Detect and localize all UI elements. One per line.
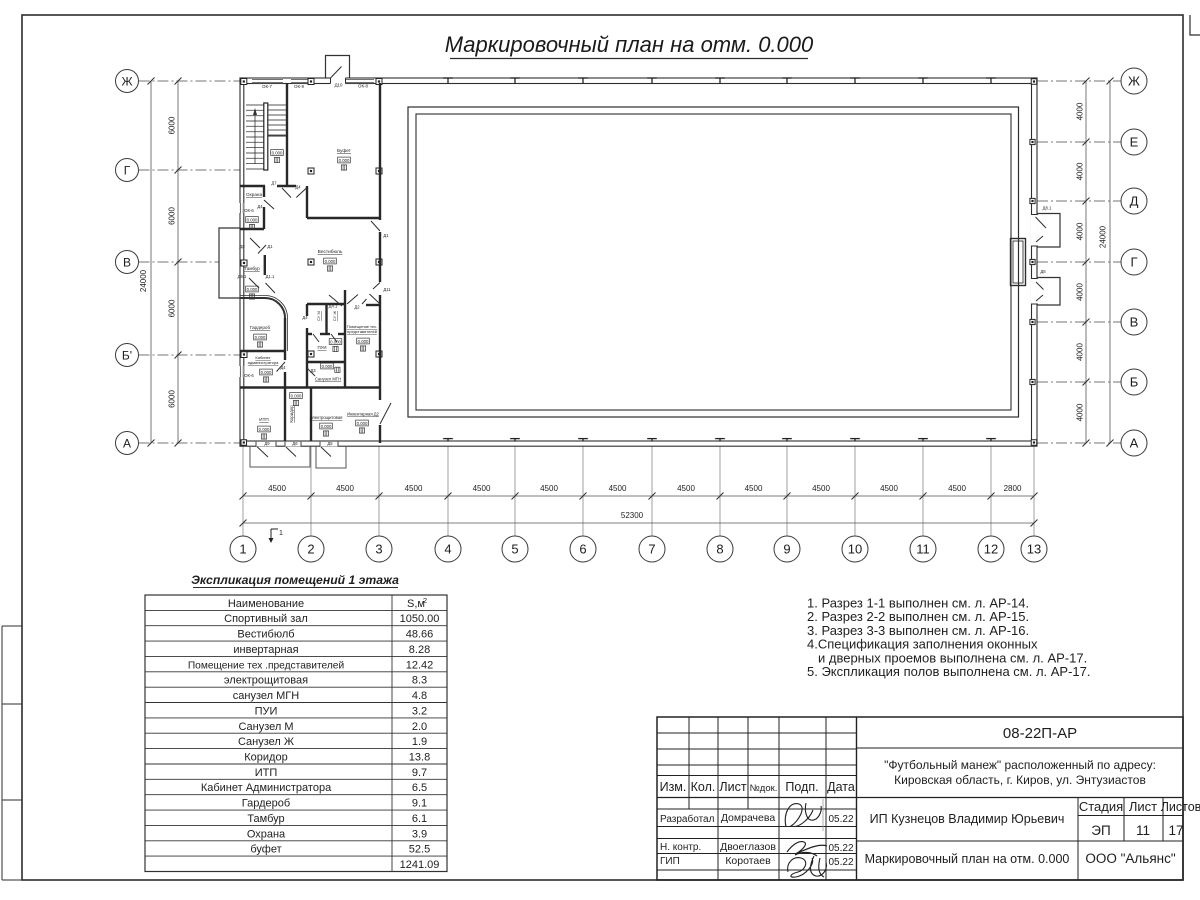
svg-text:В: В	[123, 255, 131, 269]
svg-text:Санузел МГН: Санузел МГН	[315, 377, 341, 382]
svg-text:Д11: Д11	[383, 287, 391, 292]
svg-text:2.0: 2.0	[412, 721, 427, 733]
svg-text:Д7: Д7	[271, 181, 277, 186]
svg-text:0.000: 0.000	[357, 421, 368, 426]
svg-text:Лист: Лист	[719, 780, 746, 794]
svg-text:ПУИ: ПУИ	[317, 345, 326, 350]
svg-text:Д2: Д2	[354, 305, 360, 310]
svg-text:4500: 4500	[948, 484, 966, 493]
svg-text:8.3: 8.3	[412, 675, 427, 687]
svg-text:Коридор: Коридор	[244, 752, 287, 764]
svg-text:4500: 4500	[609, 484, 627, 493]
svg-text:Д1: Д1	[267, 244, 273, 249]
svg-text:12: 12	[984, 542, 998, 557]
svg-text:Д1.1: Д1.1	[266, 274, 275, 279]
svg-text:Д5: Д5	[327, 441, 333, 446]
svg-text:Ж: Ж	[1128, 74, 1140, 89]
svg-text:Д8: Д8	[1040, 269, 1046, 274]
svg-text:Д4: Д4	[302, 315, 308, 320]
svg-text:9: 9	[783, 542, 790, 557]
svg-text:Б': Б'	[122, 348, 132, 362]
svg-text:6000: 6000	[168, 116, 177, 134]
svg-text:Г: Г	[124, 163, 131, 177]
svg-text:"Футбольный манеж" расположенн: "Футбольный манеж" расположенный по адре…	[884, 758, 1156, 772]
svg-text:9.1: 9.1	[412, 798, 427, 810]
svg-text:4.8: 4.8	[412, 690, 427, 702]
svg-text:4000: 4000	[1076, 403, 1085, 421]
svg-text:12.42: 12.42	[406, 659, 434, 671]
svg-text:Спортивный зал: Спортивный зал	[224, 613, 308, 625]
svg-text:Д: Д	[1130, 194, 1139, 209]
svg-text:Домрачева: Домрачева	[721, 812, 776, 824]
svg-text:2800: 2800	[1004, 484, 1022, 493]
svg-text:52.5: 52.5	[409, 844, 430, 856]
svg-text:представителей: представителей	[347, 329, 377, 334]
svg-text:буфет: буфет	[250, 844, 281, 856]
svg-text:0.000: 0.000	[272, 150, 283, 155]
svg-text:Г: Г	[1130, 255, 1137, 270]
svg-text:4500: 4500	[540, 484, 558, 493]
svg-text:3: 3	[375, 542, 382, 557]
svg-text:13.8: 13.8	[409, 752, 430, 764]
svg-text:ОК-6: ОК-6	[244, 373, 254, 378]
svg-text:1241.09: 1241.09	[400, 859, 440, 871]
svg-text:05.22: 05.22	[828, 843, 853, 854]
svg-text:санузел МГН: санузел МГН	[233, 690, 299, 702]
svg-text:24000: 24000	[1099, 225, 1108, 248]
svg-text:Листов: Листов	[1161, 800, 1200, 814]
svg-text:4500: 4500	[745, 484, 763, 493]
svg-text:52300: 52300	[621, 511, 644, 520]
svg-text:13: 13	[1027, 542, 1041, 557]
svg-text:Стадия: Стадия	[1079, 799, 1123, 814]
svg-text:СУ Ж: СУ Ж	[332, 311, 337, 321]
svg-text:1: 1	[239, 542, 246, 557]
svg-text:СУ М: СУ М	[316, 311, 321, 321]
svg-text:7: 7	[648, 542, 655, 557]
svg-text:Маркировочный план на отм. 0.0: Маркировочный план на отм. 0.000	[445, 32, 814, 57]
svg-text:4500: 4500	[405, 484, 423, 493]
svg-text:4500: 4500	[880, 484, 898, 493]
svg-text:0.000: 0.000	[247, 287, 258, 292]
svg-text:Кабинет Администратора: Кабинет Администратора	[201, 782, 332, 794]
svg-text:Разработал: Разработал	[660, 813, 715, 825]
svg-text:Двоеглазов: Двоеглазов	[720, 841, 776, 853]
svg-text:ООО "Альянс": ООО "Альянс"	[1085, 851, 1175, 866]
svg-text:0.000: 0.000	[330, 339, 341, 344]
svg-text:администратора: администратора	[248, 360, 279, 365]
svg-text:Подп.: Подп.	[785, 780, 818, 794]
svg-text:05.22: 05.22	[828, 857, 853, 868]
svg-text:Д4: Д4	[257, 204, 263, 209]
svg-text:№док.: №док.	[750, 783, 778, 794]
svg-text:0.000: 0.000	[325, 259, 336, 264]
svg-text:0.000: 0.000	[247, 217, 258, 222]
svg-text:6000: 6000	[168, 299, 177, 317]
svg-text:4000: 4000	[1076, 343, 1085, 361]
svg-text:4000: 4000	[1076, 222, 1085, 240]
svg-text:24000: 24000	[139, 269, 148, 292]
svg-text:Коридор: Коридор	[289, 405, 294, 423]
svg-text:ИТП: ИТП	[255, 767, 278, 779]
svg-text:Д6: Д6	[292, 441, 298, 446]
svg-text:ОК-7: ОК-7	[262, 84, 272, 89]
svg-text:0.000: 0.000	[322, 364, 333, 369]
svg-text:электрощитовая: электрощитовая	[224, 675, 308, 687]
svg-text:Д1: Д1	[383, 233, 389, 238]
svg-text:10: 10	[848, 542, 862, 557]
svg-text:08-22П-АР: 08-22П-АР	[1003, 725, 1077, 742]
svg-text:48.66: 48.66	[406, 629, 434, 641]
svg-text:9.7: 9.7	[412, 767, 427, 779]
svg-text:6.5: 6.5	[412, 782, 427, 794]
svg-text:1: 1	[279, 530, 283, 537]
svg-text:Экспликация помещений 1 этажа: Экспликация помещений 1 этажа	[191, 573, 399, 587]
svg-text:Д4: Д4	[295, 185, 301, 190]
svg-text:Гардероб: Гардероб	[250, 325, 271, 330]
svg-text:4500: 4500	[268, 484, 286, 493]
svg-text:8.28: 8.28	[409, 644, 430, 656]
svg-text:Вестибюль: Вестибюль	[318, 249, 343, 255]
svg-text:Д10: Д10	[335, 83, 343, 88]
svg-text:Наименование: Наименование	[228, 598, 304, 610]
svg-text:4000: 4000	[1076, 283, 1085, 301]
svg-text:0.000: 0.000	[291, 393, 302, 398]
svg-text:Д8: Д8	[239, 244, 245, 249]
svg-text:17: 17	[1168, 823, 1183, 838]
svg-text:Тамбур: Тамбур	[247, 813, 284, 825]
svg-text:4500: 4500	[473, 484, 491, 493]
svg-text:8: 8	[716, 542, 723, 557]
svg-text:6000: 6000	[168, 390, 177, 408]
svg-text:1.9: 1.9	[412, 736, 427, 748]
svg-text:Санузел М: Санузел М	[238, 721, 293, 733]
svg-text:4500: 4500	[677, 484, 695, 493]
svg-text:ОК-8: ОК-8	[358, 84, 368, 89]
svg-text:6: 6	[579, 542, 586, 557]
svg-text:Тамбур: Тамбур	[244, 266, 260, 271]
svg-text:Гардероб: Гардероб	[242, 798, 290, 810]
svg-text:0.000: 0.000	[339, 158, 350, 163]
svg-text:ИТП: ИТП	[259, 417, 268, 422]
svg-text:Помещение тех .представителей: Помещение тех .представителей	[188, 660, 344, 671]
svg-text:4000: 4000	[1076, 162, 1085, 180]
svg-text:0.000: 0.000	[259, 427, 270, 432]
svg-text:Изм.: Изм.	[660, 780, 687, 794]
svg-text:6.1: 6.1	[412, 813, 427, 825]
svg-text:Маркировочный план на отм. 0.0: Маркировочный план на отм. 0.000	[865, 852, 1070, 866]
svg-text:1050.00: 1050.00	[400, 613, 440, 625]
svg-text:Электрощитовая: Электрощитовая	[310, 415, 343, 420]
svg-text:5. Экспликация полов выполнена: 5. Экспликация полов выполнена см. л. АР…	[807, 664, 1091, 679]
svg-text:Охрана: Охрана	[247, 828, 286, 840]
svg-text:А: А	[1130, 436, 1139, 451]
svg-text:Дата: Дата	[827, 780, 855, 794]
svg-text:Лист: Лист	[1129, 799, 1157, 814]
svg-text:Вестибюлб: Вестибюлб	[237, 629, 294, 641]
svg-text:Ж: Ж	[121, 74, 132, 88]
svg-text:ГИП: ГИП	[660, 856, 680, 867]
svg-text:2: 2	[423, 596, 427, 605]
svg-text:Е: Е	[1130, 135, 1139, 150]
svg-text:11: 11	[916, 542, 930, 557]
svg-text:11: 11	[1136, 823, 1150, 838]
svg-text:ИП Кузнецов Владимир Юрьевич: ИП Кузнецов Владимир Юрьевич	[870, 812, 1065, 826]
svg-text:Кировская область, г. Киров, у: Кировская область, г. Киров, ул. Энтузиа…	[894, 773, 1146, 787]
svg-text:В: В	[1130, 315, 1139, 330]
svg-text:5: 5	[511, 542, 518, 557]
svg-text:Кол.: Кол.	[691, 780, 716, 794]
svg-text:0.000: 0.000	[321, 424, 332, 429]
svg-text:Д9: Д9	[264, 441, 270, 446]
svg-text:6000: 6000	[168, 207, 177, 225]
svg-text:Д8.1: Д8.1	[238, 274, 247, 279]
svg-text:ОК-9: ОК-9	[294, 84, 304, 89]
svg-text:Инвентарная Д2: Инвентарная Д2	[347, 412, 380, 417]
svg-text:Б: Б	[1130, 375, 1139, 390]
svg-text:0.000: 0.000	[261, 370, 272, 375]
svg-text:2: 2	[307, 542, 314, 557]
svg-text:инвертарная: инвертарная	[233, 644, 298, 656]
svg-text:ЭП: ЭП	[1091, 823, 1110, 838]
svg-text:0.000: 0.000	[255, 335, 266, 340]
svg-text:3.2: 3.2	[412, 705, 427, 717]
svg-text:А: А	[123, 436, 131, 450]
svg-text:Буфет: Буфет	[337, 148, 352, 154]
svg-text:3.9: 3.9	[412, 828, 427, 840]
svg-text:4500: 4500	[336, 484, 354, 493]
svg-text:ОК-6: ОК-6	[244, 208, 254, 213]
svg-text:4000: 4000	[1076, 102, 1085, 120]
svg-text:Д4: Д4	[280, 365, 286, 370]
svg-text:Д4.1: Д4.1	[329, 304, 338, 309]
svg-text:Санузел Ж: Санузел Ж	[238, 736, 294, 748]
svg-text:0.000: 0.000	[358, 339, 369, 344]
svg-text:ПУИ: ПУИ	[255, 705, 278, 717]
svg-text:Охрана: Охрана	[246, 192, 262, 197]
svg-text:Д8.1: Д8.1	[1043, 206, 1052, 211]
svg-text:05.22: 05.22	[828, 814, 853, 825]
svg-text:4: 4	[444, 542, 451, 557]
svg-text:4500: 4500	[812, 484, 830, 493]
svg-text:Н. контр.: Н. контр.	[660, 842, 701, 853]
svg-text:Коротаев: Коротаев	[725, 855, 771, 867]
